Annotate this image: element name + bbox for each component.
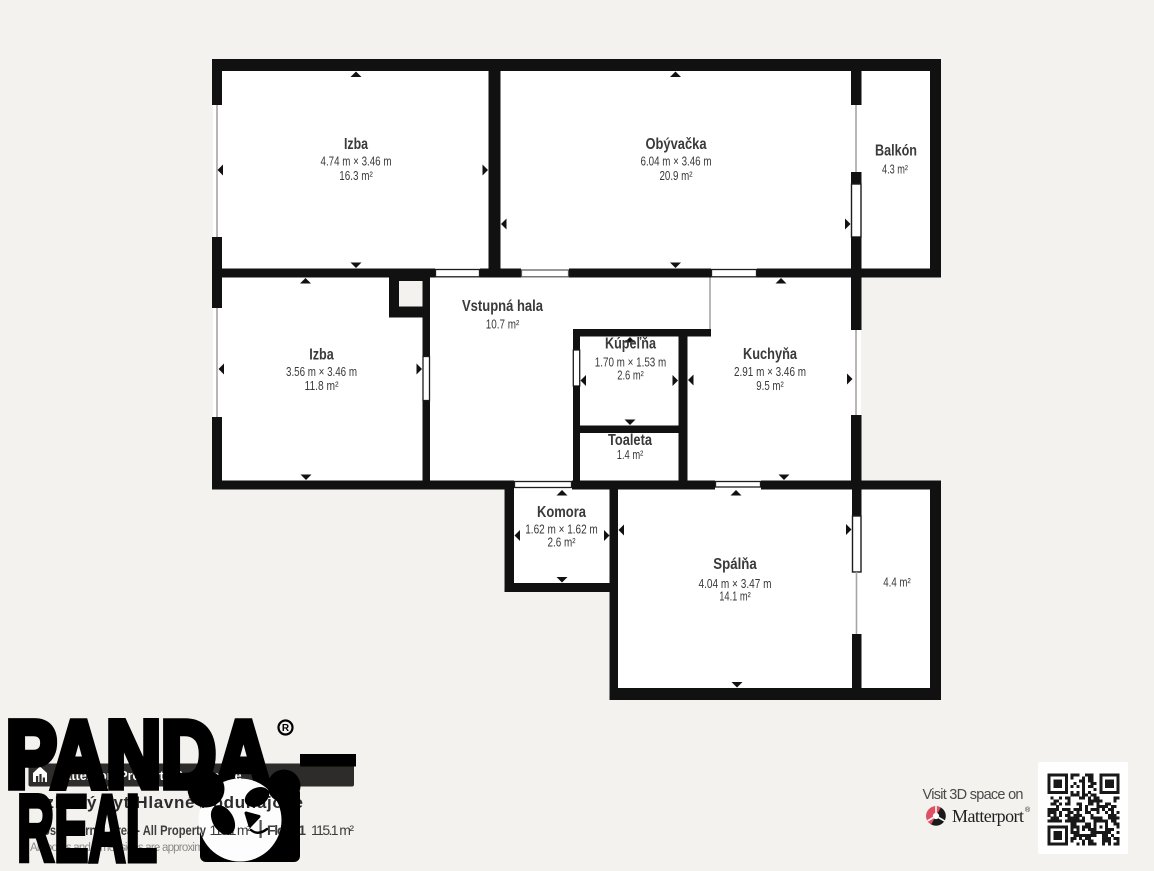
svg-text:Komora: Komora — [537, 504, 586, 521]
svg-text:Kuchyňa: Kuchyňa — [743, 346, 797, 363]
svg-text:10.7 m²: 10.7 m² — [486, 318, 520, 332]
svg-text:Vstupná hala: Vstupná hala — [462, 298, 543, 315]
svg-text:Toaleta: Toaleta — [608, 432, 652, 449]
svg-text:4.74 m × 3.46 m: 4.74 m × 3.46 m — [321, 155, 392, 169]
svg-text:REAL: REAL — [17, 776, 157, 866]
svg-text:14.1 m²: 14.1 m² — [719, 590, 751, 604]
svg-text:Matterport: Matterport — [952, 806, 1024, 826]
svg-text:115.1 m²: 115.1 m² — [311, 822, 354, 838]
svg-text:20.9 m²: 20.9 m² — [660, 169, 693, 183]
svg-text:Obývačka: Obývačka — [646, 136, 707, 153]
svg-text:Spálňa: Spálňa — [713, 556, 757, 573]
svg-text:1.70 m × 1.53 m: 1.70 m × 1.53 m — [595, 356, 667, 370]
svg-text:4.3 m²: 4.3 m² — [882, 163, 908, 177]
svg-text:Izba: Izba — [309, 347, 334, 364]
svg-text:11.8 m²: 11.8 m² — [305, 379, 339, 393]
svg-text:Visit 3D space on: Visit 3D space on — [923, 787, 1024, 803]
svg-text:Balkón: Balkón — [875, 143, 917, 160]
svg-text:1.62 m × 1.62 m: 1.62 m × 1.62 m — [525, 523, 598, 537]
svg-text:Kúpeľňa: Kúpeľňa — [605, 336, 656, 353]
svg-text:Izba: Izba — [344, 136, 368, 153]
svg-text:®: ® — [1025, 806, 1031, 814]
svg-text:9.5 m²: 9.5 m² — [756, 379, 784, 393]
svg-text:3.56 m × 3.46 m: 3.56 m × 3.46 m — [286, 365, 357, 379]
svg-text:6.04 m × 3.46 m: 6.04 m × 3.46 m — [641, 155, 712, 169]
svg-text:2.6 m²: 2.6 m² — [548, 536, 576, 550]
svg-text:4.4 m²: 4.4 m² — [883, 576, 911, 590]
svg-text:R: R — [282, 723, 290, 734]
svg-text:16.3 m²: 16.3 m² — [339, 169, 373, 183]
svg-text:2.91 m × 3.46 m: 2.91 m × 3.46 m — [734, 365, 806, 379]
svg-text:2.6 m²: 2.6 m² — [617, 369, 644, 383]
svg-text:1.4 m²: 1.4 m² — [617, 448, 644, 462]
